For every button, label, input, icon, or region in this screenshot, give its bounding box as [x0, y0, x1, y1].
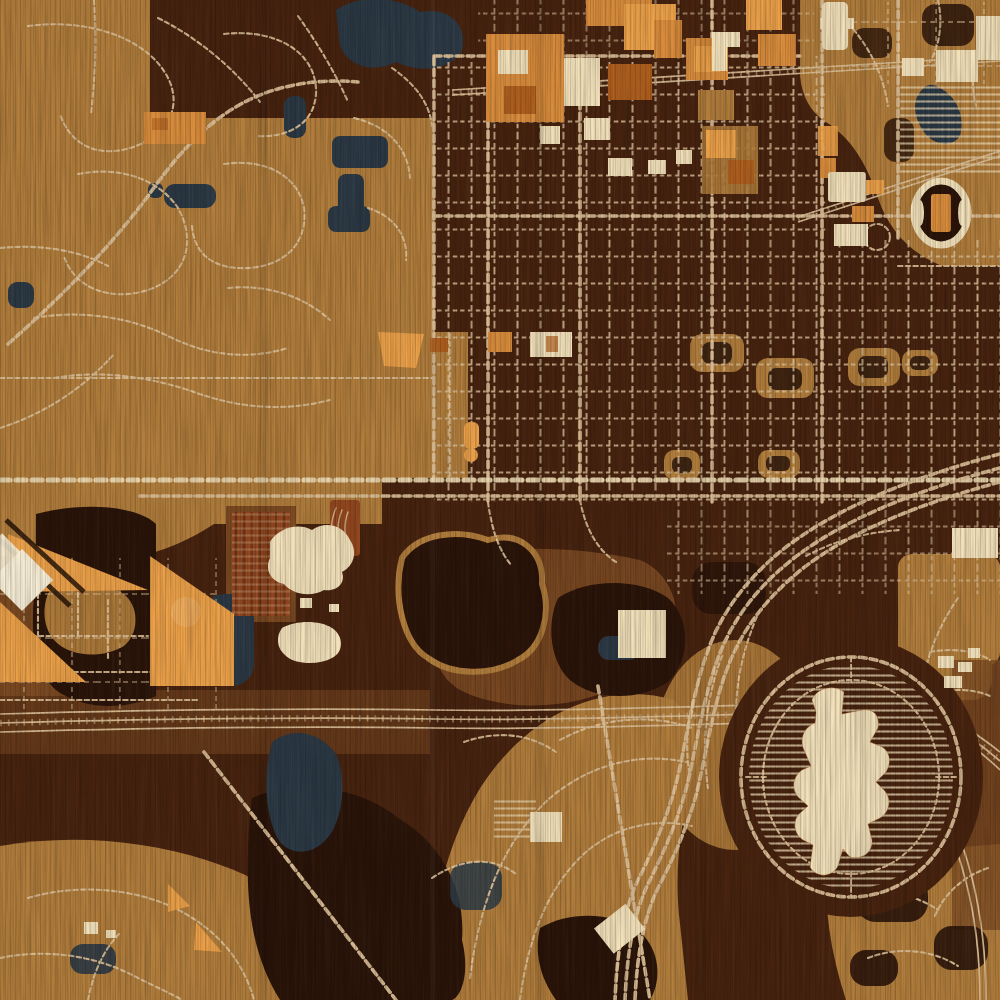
wood-texture-layer	[0, 0, 1000, 1000]
wood-map-canvas	[0, 0, 1000, 1000]
